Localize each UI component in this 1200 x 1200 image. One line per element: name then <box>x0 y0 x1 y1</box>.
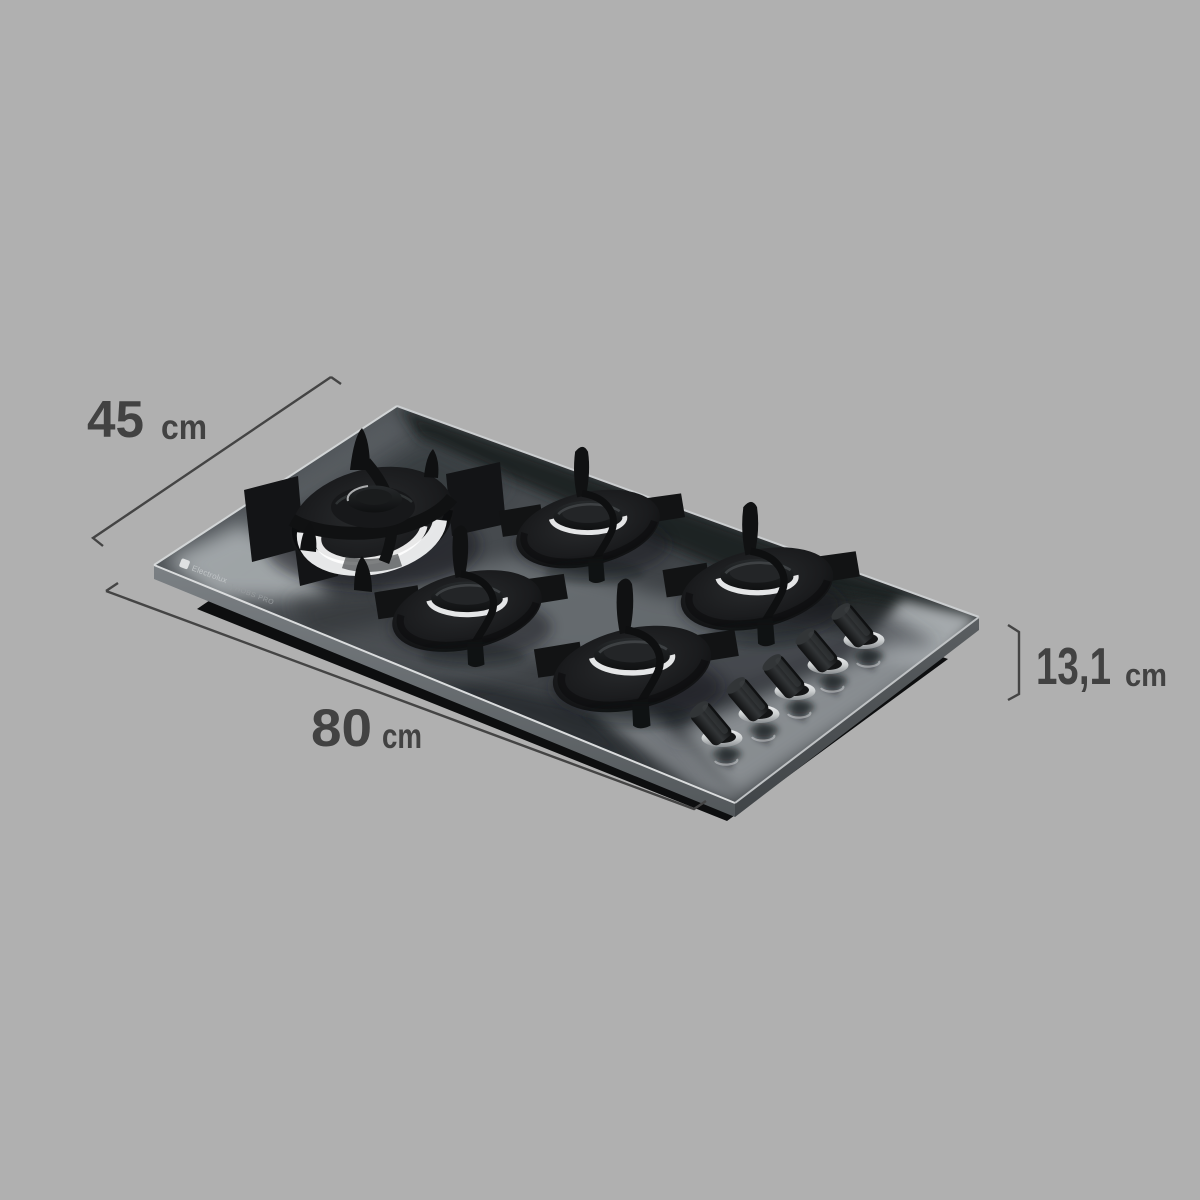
svg-text:13,1: 13,1 <box>1036 638 1111 696</box>
svg-text:cm: cm <box>382 717 422 756</box>
svg-text:cm: cm <box>161 408 207 447</box>
svg-text:45: 45 <box>87 391 144 449</box>
svg-text:80: 80 <box>311 699 372 758</box>
svg-text:cm: cm <box>1125 657 1167 693</box>
